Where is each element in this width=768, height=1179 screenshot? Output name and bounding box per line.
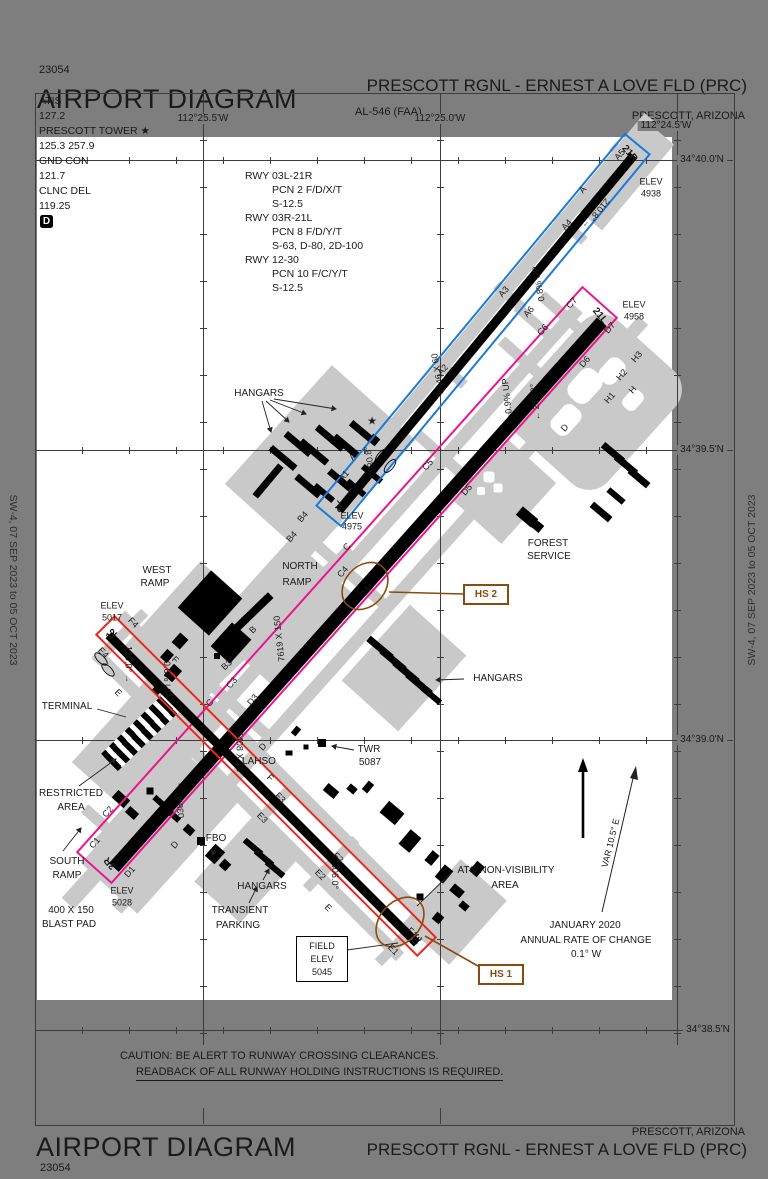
footer-chart-code: 23054 xyxy=(40,1162,71,1175)
hs1-box: HS 1 xyxy=(478,964,524,985)
footer-airport-name: PRESCOTT RGNL - ERNEST A LOVE FLD (PRC) xyxy=(367,1140,747,1160)
elev-21r: 4938 xyxy=(641,190,661,199)
caution-line1: CAUTION: BE ALERT TO RUNWAY CROSSING CLE… xyxy=(120,1050,439,1063)
ground-freq: 121.7 xyxy=(39,170,65,182)
rwy-info-3: S-12.5 xyxy=(272,198,303,210)
elev-3r: 5028 xyxy=(112,899,132,908)
blast-pad-label: 400 X 150 xyxy=(48,906,94,916)
rwy-info-6: S-63, D-80, 2D-100 xyxy=(272,240,363,252)
footer-title: AIRPORT DIAGRAM xyxy=(36,1132,296,1163)
airport-diagram-page: SW-4, 07 SEP 2023 to 05 OCT 2023 SW-4, 0… xyxy=(0,0,768,1179)
variation-rate: ANNUAL RATE OF CHANGE xyxy=(520,936,651,946)
blast-pad-label2: BLAST PAD xyxy=(42,920,96,930)
lahso-label: LAHSO xyxy=(242,757,276,767)
north-ramp-label2: RAMP xyxy=(283,578,312,588)
forest-service-label2: SERVICE xyxy=(527,552,571,562)
footer-city: PRESCOTT, ARIZONA xyxy=(632,1126,745,1139)
twr-label: TWR xyxy=(358,745,381,755)
atc-non-visibility-label2: AREA xyxy=(491,881,518,891)
hs2-box: HS 2 xyxy=(463,584,509,605)
beacon-star-icon: ★ xyxy=(367,417,377,428)
hangars-right-arrow xyxy=(436,679,464,680)
field-elev-value: 5045 xyxy=(297,966,347,979)
rwy-info-1: RWY 03L-21R xyxy=(245,170,312,182)
tower-label: PRESCOTT TOWER ★ xyxy=(39,125,150,137)
variation-value: 0.1° W xyxy=(571,950,601,960)
rwy-info-5: PCN 8 F/D/Y/T xyxy=(272,226,342,238)
west-ramp-label2: RAMP xyxy=(141,579,170,589)
caution-line2: READBACK OF ALL RUNWAY HOLDING INSTRUCTI… xyxy=(136,1066,503,1081)
elev-label: ELEV xyxy=(639,178,662,187)
transient-label2: PARKING xyxy=(216,921,260,931)
west-ramp-label: WEST xyxy=(143,566,172,576)
latitude-label: 34°39.0'N xyxy=(677,735,727,745)
terminal-leader xyxy=(97,709,126,717)
twr-arrow xyxy=(332,746,354,750)
rwy-info-4: RWY 03R-21L xyxy=(245,212,312,224)
latitude-label: 34°40.0'N xyxy=(677,155,727,165)
field-elev-box: FIELD ELEV 5045 xyxy=(296,936,348,982)
transient-label: TRANSIENT xyxy=(212,906,269,916)
latitude-label: 34°38.5'N xyxy=(683,1025,733,1035)
north-ramp-label: NORTH xyxy=(282,562,317,572)
clearance-label: CLNC DEL xyxy=(39,185,91,197)
elev-label: ELEV xyxy=(100,602,123,611)
hs1-leader xyxy=(425,936,478,966)
twr-elev: 5087 xyxy=(359,758,381,768)
elev-3l: 4975 xyxy=(342,523,362,532)
ground-label: GND CON xyxy=(39,155,89,167)
restricted-arrow xyxy=(79,759,116,786)
elev-label: ELEV xyxy=(340,512,363,521)
variation-date: JANUARY 2020 xyxy=(549,921,620,931)
atc-leader xyxy=(417,872,452,906)
field-elev-line2: ELEV xyxy=(297,953,347,966)
tower-freq: 125.3 257.9 xyxy=(39,140,94,152)
longitude-label: 112°24.5'W xyxy=(638,121,695,131)
fbo-arrow xyxy=(212,845,217,855)
hangars-label: HANGARS xyxy=(234,389,283,399)
rwy-info-7: RWY 12-30 xyxy=(245,254,299,266)
restricted-label: RESTRICTED xyxy=(39,789,103,799)
elev-21l: 4958 xyxy=(624,313,644,322)
elev-label: ELEV xyxy=(622,301,645,310)
latitude-label: 34°39.5'N xyxy=(677,445,727,455)
forest-service-label: FOREST xyxy=(528,539,569,549)
hangars-arrows xyxy=(63,399,464,950)
south-ramp-label2: RAMP xyxy=(53,871,82,881)
hangars-arrow xyxy=(263,869,269,880)
longitude-label: 112°25.5'W xyxy=(175,114,232,124)
rwy-info-9: S-12.5 xyxy=(272,282,303,294)
restricted-label2: AREA xyxy=(57,803,84,813)
rwy-info-8: PCN 10 F/C/Y/T xyxy=(272,268,348,280)
clearance-freq: 119.25 xyxy=(39,200,70,212)
fbo-label: FBO xyxy=(206,834,227,844)
hs2-leader xyxy=(389,592,463,594)
hangars-label: HANGARS xyxy=(473,674,522,684)
atc-non-visibility-label: ATC NON-VISIBILITY xyxy=(457,866,554,876)
terminal-label: TERMINAL xyxy=(42,702,93,712)
rwy-info-2: PCN 2 F/D/X/T xyxy=(272,184,342,196)
elev-12: 5017 xyxy=(102,614,122,623)
hangars-label: HANGARS xyxy=(237,882,286,892)
south-ramp-label: SOUTH xyxy=(50,857,85,867)
hotspot-marks xyxy=(333,553,478,966)
declared-distance-icon: D xyxy=(40,215,53,228)
elev-label: ELEV xyxy=(110,887,133,896)
field-elev-line1: FIELD xyxy=(297,940,347,953)
wind-indicator-icons xyxy=(93,448,398,679)
atis-freq: 127.2 xyxy=(39,110,65,122)
south-ramp-arrow xyxy=(63,828,81,851)
atis-label: ATIS xyxy=(39,95,62,107)
longitude-label: 112°25.0'W xyxy=(412,114,469,124)
